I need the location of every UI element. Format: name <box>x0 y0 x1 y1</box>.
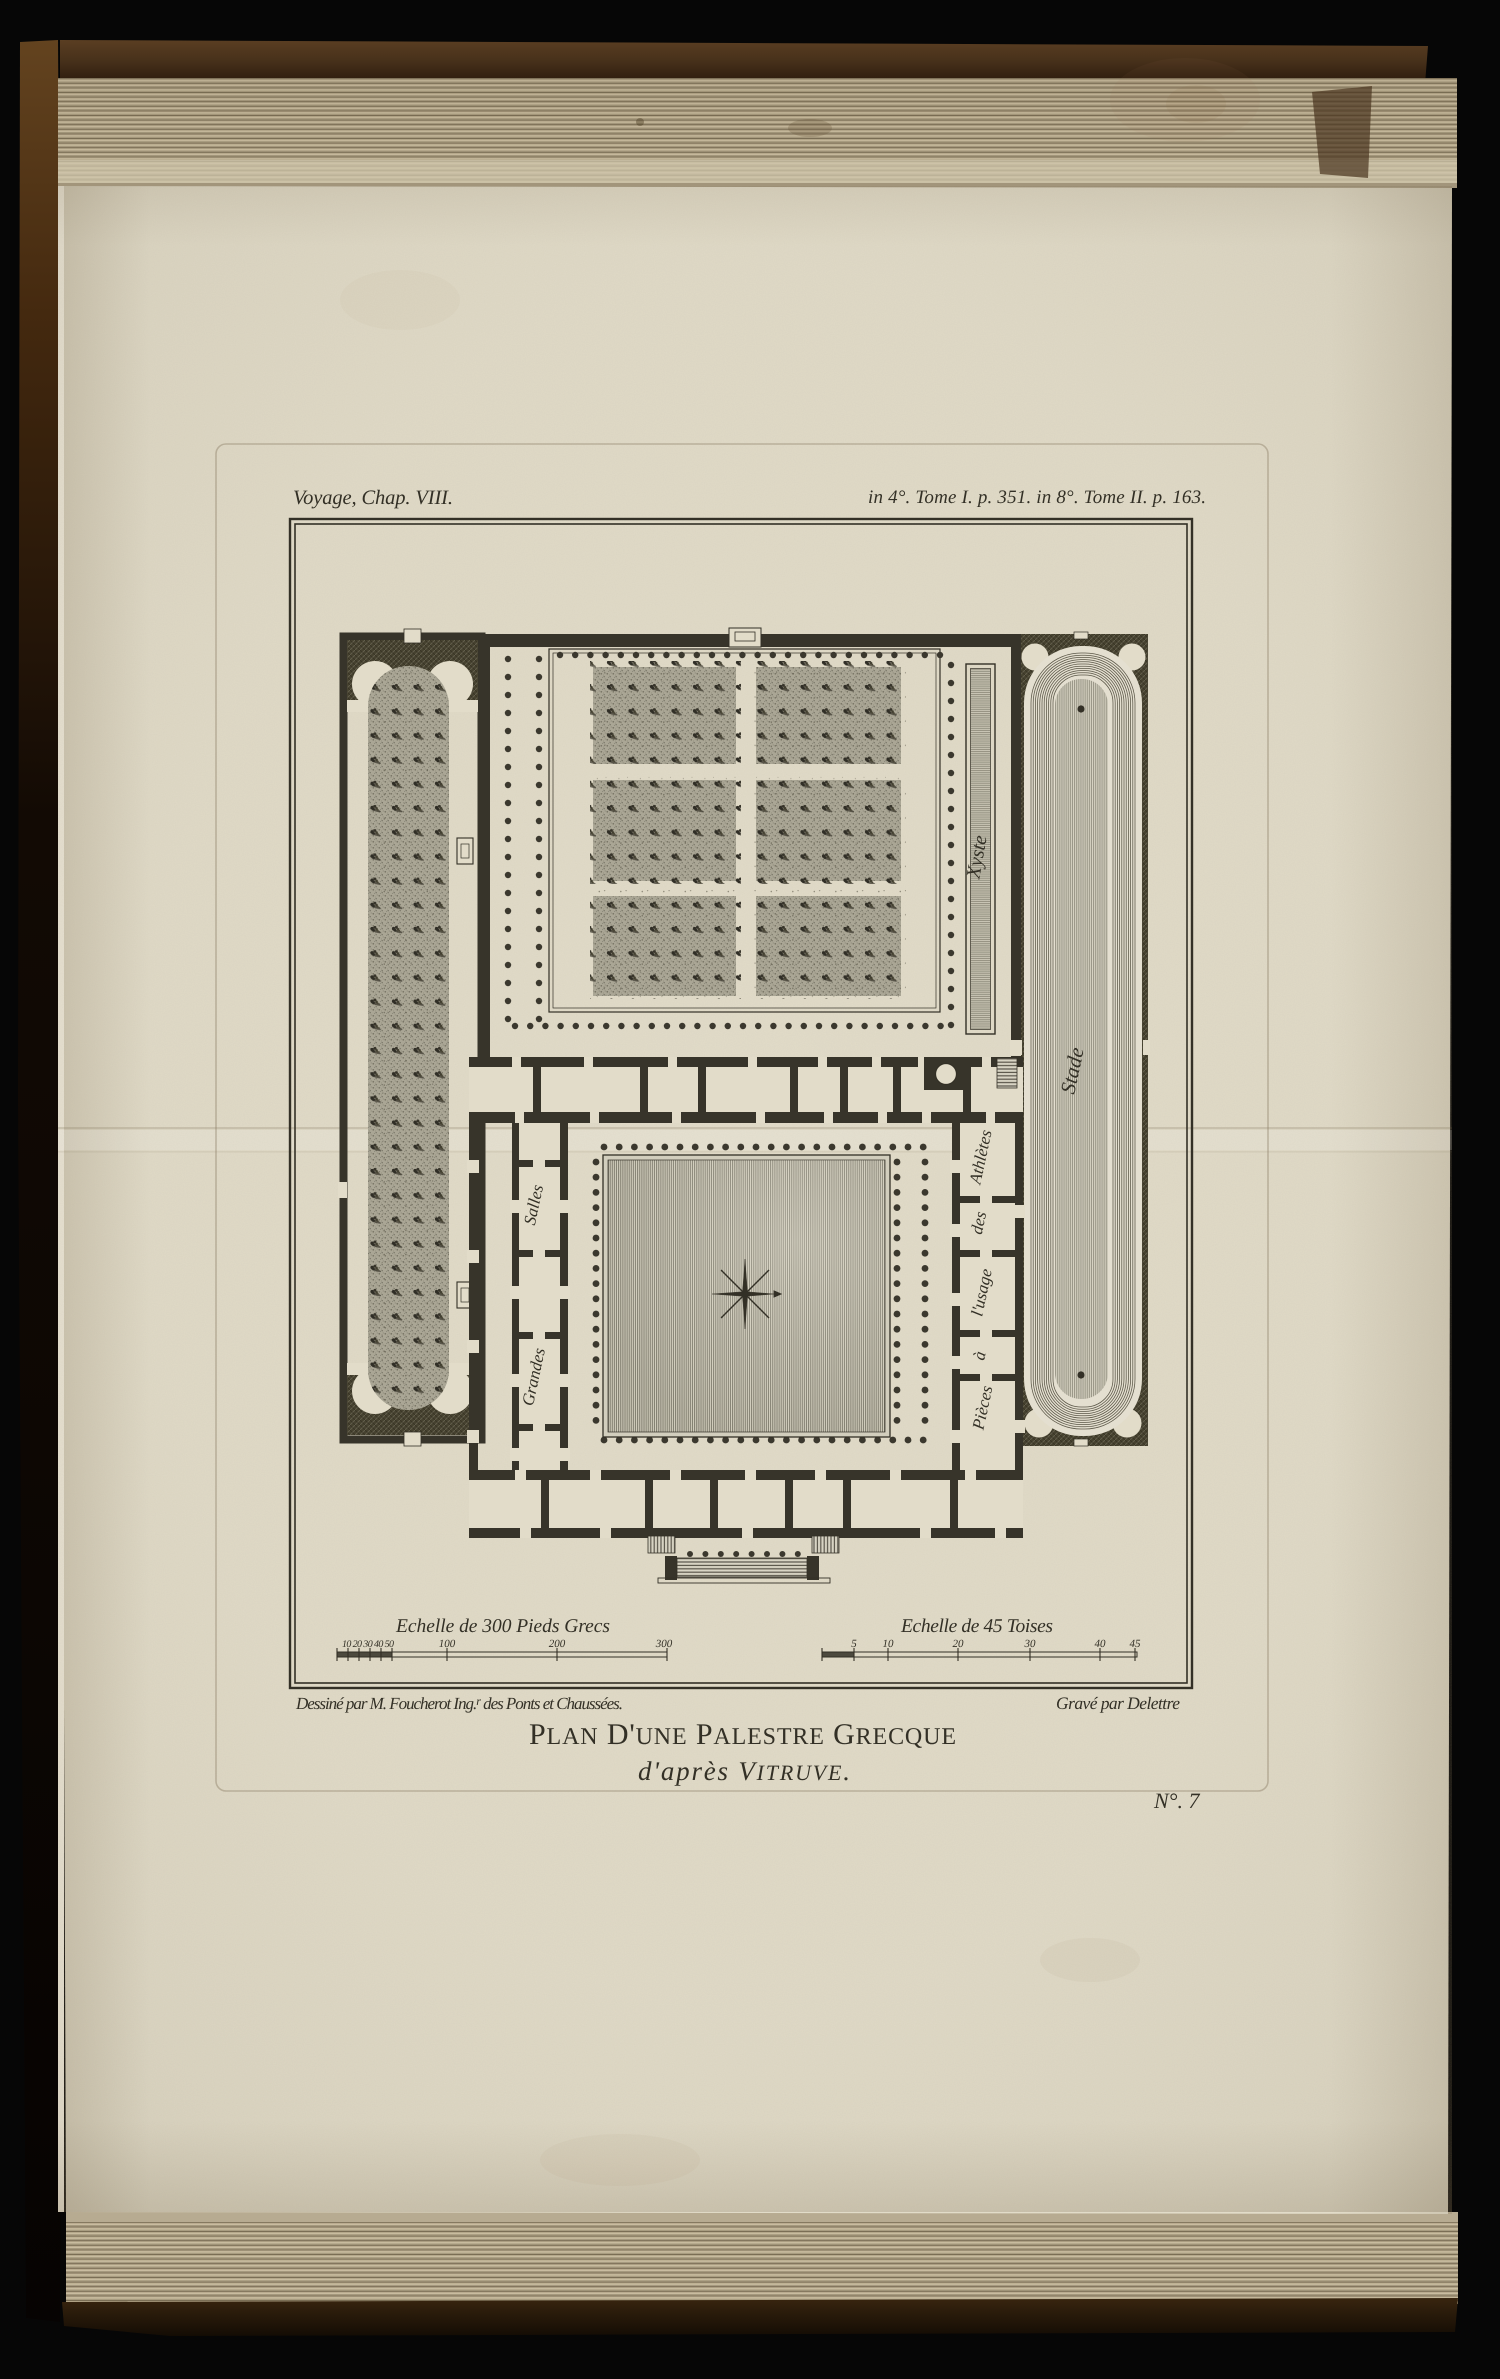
svg-text:N°. 7: N°. 7 <box>1153 1788 1200 1813</box>
svg-text:Echelle de 300 Pieds Grecs: Echelle de 300 Pieds Grecs <box>395 1616 610 1637</box>
svg-text:300: 300 <box>655 1638 673 1650</box>
svg-text:Dessiné par M. Foucherot Ing.r: Dessiné par M. Foucherot Ing.r des Ponts… <box>295 1694 623 1713</box>
svg-text:Gravé par Delettre: Gravé par Delettre <box>1056 1693 1180 1713</box>
svg-text:5: 5 <box>851 1638 857 1650</box>
svg-text:10: 10 <box>883 1638 895 1650</box>
svg-text:30: 30 <box>1024 1638 1037 1650</box>
svg-text:40: 40 <box>1095 1638 1107 1650</box>
svg-text:45: 45 <box>1130 1638 1142 1650</box>
svg-text:100: 100 <box>439 1638 456 1650</box>
svg-text:Echelle de 45 Toises: Echelle de 45 Toises <box>900 1616 1053 1637</box>
svg-text:in 4°. Tome I. p. 351. in 8°.: in 4°. Tome I. p. 351. in 8°. Tome II. p… <box>868 487 1206 508</box>
svg-text:10 20 30 40 50: 10 20 30 40 50 <box>342 1639 394 1650</box>
svg-text:200: 200 <box>549 1638 566 1650</box>
svg-text:d'après VITRUVE.: d'après VITRUVE. <box>638 1756 850 1786</box>
svg-text:20: 20 <box>953 1638 965 1650</box>
svg-text:Voyage, Chap. VIII.: Voyage, Chap. VIII. <box>293 487 453 509</box>
